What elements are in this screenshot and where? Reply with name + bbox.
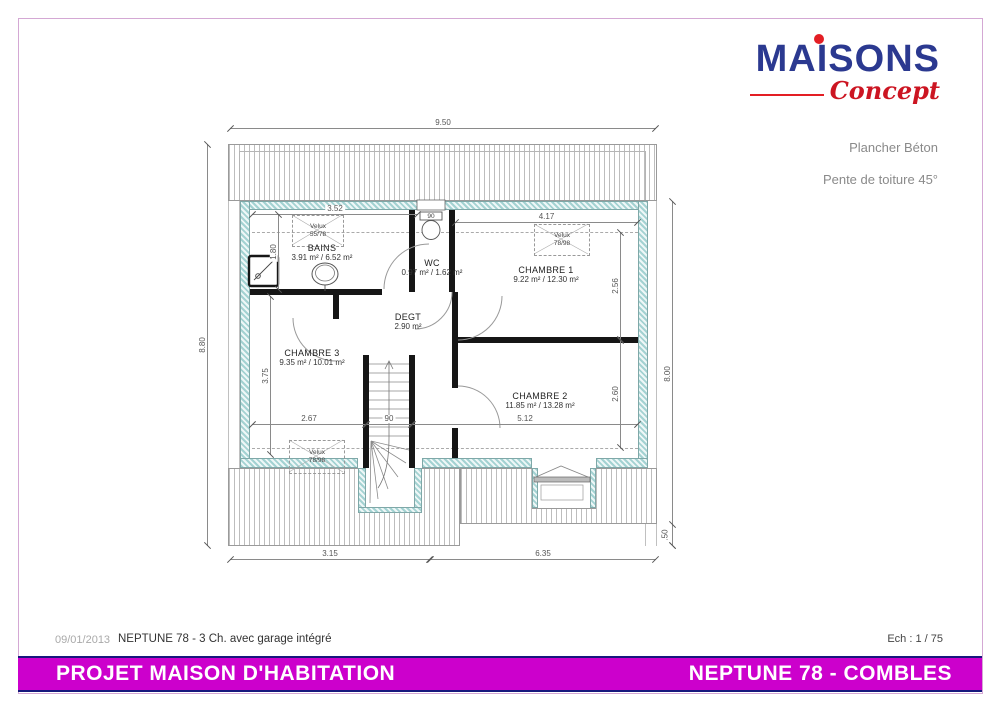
company-logo: MAISONS Concept — [750, 40, 940, 103]
dim-height-right: 8.00 — [672, 201, 673, 546]
drawing-date: 09/01/2013 — [55, 634, 110, 646]
model-description: NEPTUNE 78 - 3 Ch. avec garage intégré — [118, 633, 332, 645]
plan-title: NEPTUNE 78 - COMBLES — [689, 662, 952, 686]
dim-chambre2-width: 5.12 — [412, 424, 638, 425]
velux-window-3: Velux 78/98 — [289, 440, 345, 474]
wall-exterior-bottom-3 — [596, 458, 648, 468]
wall-degt-right-stub — [452, 428, 458, 458]
room-label-wc: WC 0.97 m² / 1.62 m² — [402, 258, 463, 277]
room-label-chambre1: CHAMBRE 1 9.22 m² / 12.30 m² — [513, 265, 578, 284]
room-label-bains: BAINS 3.91 m² / 6.52 m² — [292, 243, 353, 262]
wall-ch3-degt — [333, 295, 339, 319]
dormer-bump — [532, 468, 596, 509]
scale-label: Ech : 1 / 75 — [887, 633, 943, 645]
velux-1-size: 55/78 — [310, 231, 326, 239]
room-label-degt: DEGT 2.90 m² — [394, 312, 421, 331]
dim-roof-offset: .50 — [672, 524, 673, 546]
velux-window-2: Velux 78/98 — [534, 224, 590, 256]
room-label-chambre2: CHAMBRE 2 11.85 m² / 13.28 m² — [505, 391, 574, 410]
velux-2-label: Velux — [554, 232, 570, 240]
page-border — [18, 18, 983, 694]
wall-wc-left — [409, 210, 415, 292]
room-label-chambre3: CHAMBRE 3 9.35 m² / 10.01 m² — [279, 348, 344, 367]
dim-wc-window: 90 — [427, 213, 434, 220]
wall-exterior-left — [240, 201, 250, 468]
dim-height-left: 8.80 — [207, 144, 208, 546]
wall-exterior-top — [240, 201, 648, 210]
wall-exterior-bottom-2 — [422, 458, 532, 468]
roof-band-top-inner — [239, 151, 646, 200]
logo-dot-icon — [814, 34, 824, 44]
dim-stair-width: 90 — [366, 424, 412, 425]
velux-3-label: Velux — [309, 449, 325, 457]
brand-name: MAISONS — [750, 40, 940, 78]
dim-chambre1-depth: 2.56 — [620, 232, 621, 340]
roof-band-bottom-left — [228, 468, 460, 546]
roof-band-top — [228, 144, 657, 201]
dormer-wall-left — [532, 468, 538, 508]
dim-bottom-left: 3.15 — [230, 559, 430, 560]
wall-ch1-ch2 — [458, 337, 638, 343]
dim-chambre3-depth: 3.75 — [270, 296, 271, 455]
wall-exterior-right — [638, 201, 648, 468]
velux-1-label: Velux — [310, 223, 326, 231]
dim-chambre1-width: 4.17 — [455, 222, 638, 223]
wall-stairs-right — [409, 355, 415, 468]
dim-bottom-right: 6.35 — [430, 559, 656, 560]
stairwell-wall-bottom — [358, 507, 422, 513]
project-title-bar: PROJET MAISON D'HABITATION NEPTUNE 78 - … — [18, 656, 982, 692]
wall-stairs-left — [363, 355, 369, 468]
logo-underline — [750, 94, 824, 96]
drawing-sheet: MAISONS Concept Plancher Béton Pente de … — [0, 0, 1000, 707]
dim-attic-line: 1.80 — [278, 214, 279, 290]
dim-total-width: 9.50 — [230, 128, 656, 129]
velux-2-size: 78/98 — [554, 240, 570, 248]
note-roof-pitch: Pente de toiture 45° — [823, 172, 938, 187]
brand-subname: Concept — [830, 79, 940, 103]
velux-3-size: 78/98 — [309, 457, 325, 465]
dormer-wall-right — [590, 468, 596, 508]
project-title: PROJET MAISON D'HABITATION — [56, 662, 395, 686]
dim-chambre2-depth: 2.60 — [620, 340, 621, 448]
note-floor: Plancher Béton — [849, 140, 938, 155]
